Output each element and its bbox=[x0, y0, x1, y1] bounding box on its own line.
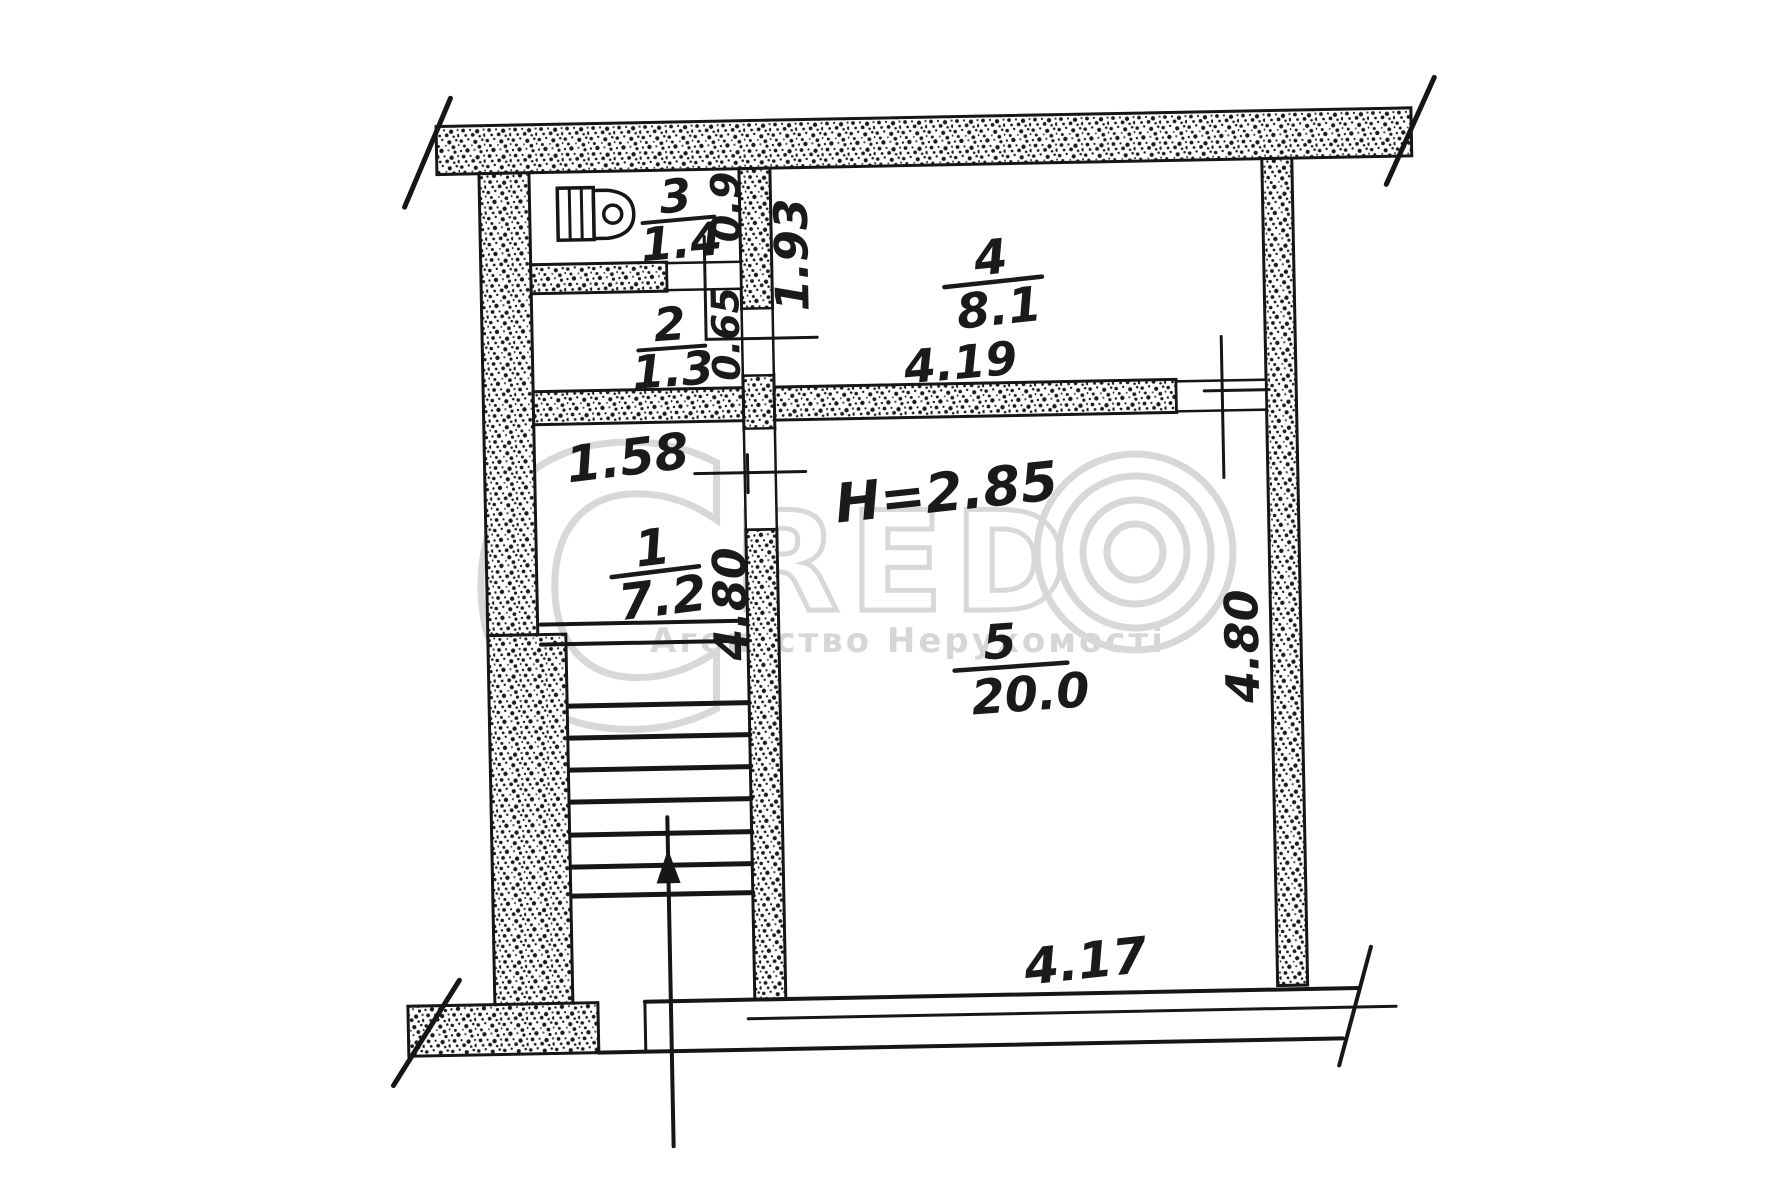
scanned-floorplan-page: Агентство Нерухомості C RED bbox=[0, 0, 1772, 1181]
dim-tick-room4-opening bbox=[1204, 390, 1269, 391]
dim-hall-depth: 4.80 bbox=[702, 547, 758, 663]
room5-number: 5 bbox=[981, 613, 1018, 671]
wall-porch-stub bbox=[408, 1003, 599, 1057]
wall-middle-mid bbox=[743, 374, 775, 430]
dim-room2-door-width: 0.65 bbox=[703, 287, 749, 382]
room2-area: 1.3 bbox=[630, 340, 715, 400]
dim-tick-158 bbox=[747, 455, 748, 493]
entrance-edge bbox=[645, 1002, 646, 1052]
room5-area: 20.0 bbox=[969, 662, 1091, 726]
room1-area: 7.2 bbox=[615, 564, 710, 633]
floorplan-canvas: Агентство Нерухомості C RED bbox=[0, 0, 1772, 1181]
dim-room3-depth: 0.9 bbox=[703, 171, 750, 243]
wall-left-upper bbox=[479, 173, 538, 636]
toilet-icon bbox=[557, 187, 634, 240]
dim-room4-width: 4.19 bbox=[901, 331, 1020, 395]
dim-line-158 bbox=[695, 472, 806, 474]
dim-room4-depth: 1.93 bbox=[763, 197, 819, 312]
dim-room5-depth: 4.80 bbox=[1214, 589, 1270, 705]
wall-left-lower bbox=[488, 634, 573, 1007]
